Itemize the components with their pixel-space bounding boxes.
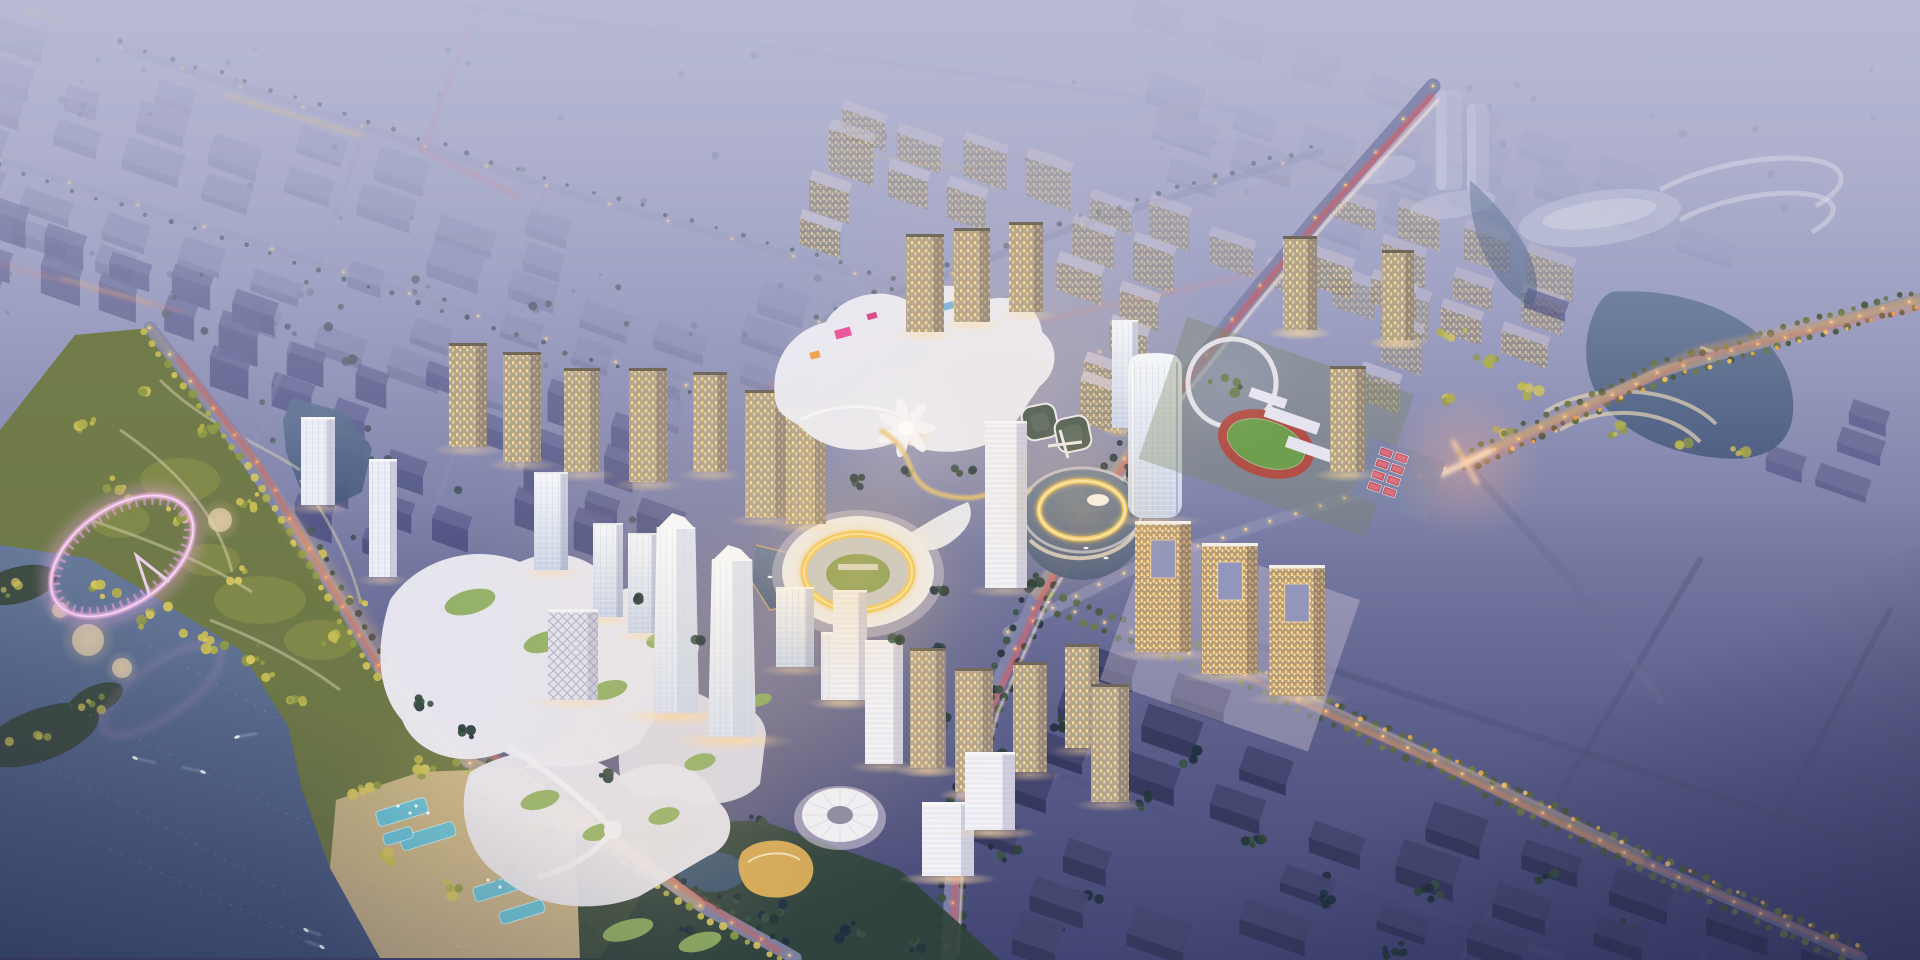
glow-and-vignette-overlay xyxy=(0,0,1920,960)
screenshot-root xyxy=(0,0,1920,960)
city-aerial-dusk-rendering xyxy=(0,0,1920,960)
